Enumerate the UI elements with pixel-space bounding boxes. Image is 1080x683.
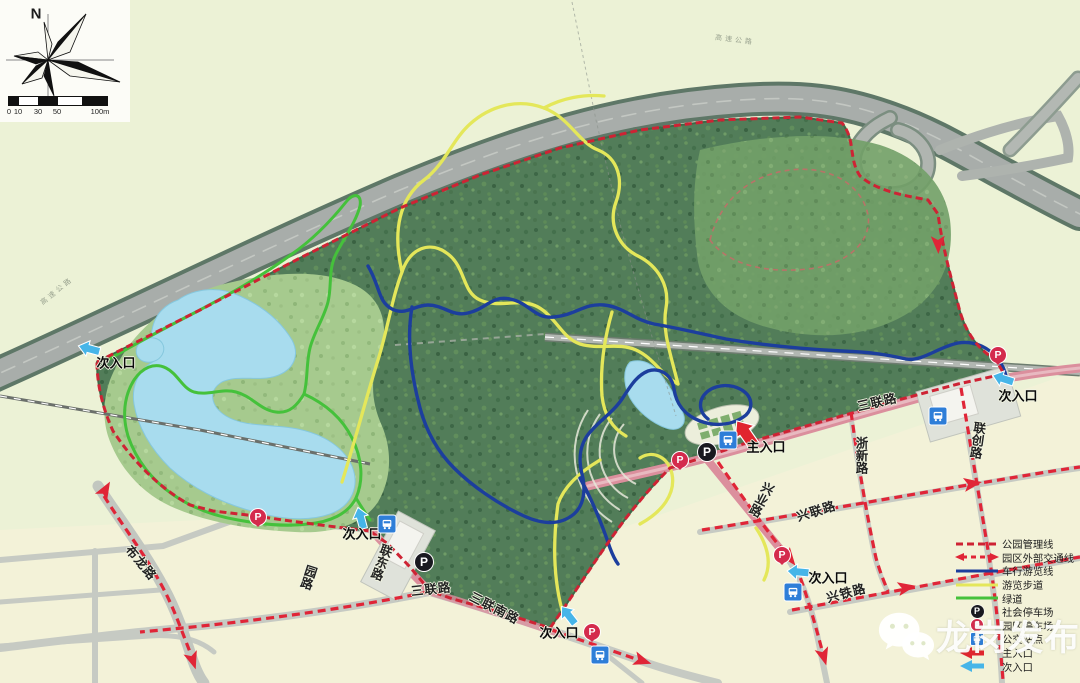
scale-tick: 30 — [34, 107, 42, 116]
scale-tick: 10 — [14, 107, 22, 116]
northeast-meadow — [694, 136, 951, 335]
legend-dashed-arrow-line — [952, 552, 1002, 562]
legend-blue-line — [952, 567, 1002, 575]
legend-row-park-admin-line: 公园管理线 — [952, 537, 1080, 551]
legend-red-arrow-icon — [952, 647, 1002, 659]
legend-green-line — [952, 594, 1002, 602]
legend-row-vehicle-tour: 车行游览线 — [952, 564, 1080, 578]
legend-blue-arrow-icon — [952, 660, 1002, 672]
park-plan-map: 高速公路 高速公路 布龙路 园路 联东路 三联路 三联南路 三联路 兴业路 兴联… — [0, 0, 1080, 683]
legend-row-secondary-entrance: 次入口 — [952, 659, 1080, 673]
scale-bar-blocks — [8, 96, 108, 106]
legend-yellow-line — [952, 581, 1002, 589]
legend-public-parking-icon: P — [971, 605, 984, 618]
legend-park-parking-icon: P — [970, 618, 984, 632]
legend: 公园管理线 园区外部交通线 车行游览线 游览步道 绿道 P 社会停车场 P 园区… — [952, 537, 1080, 673]
scale-tick: 100m — [91, 107, 110, 116]
scale-bar: 0 10 30 50 100m — [8, 96, 108, 120]
scale-tick: 0 — [7, 107, 11, 116]
legend-row-public-parking: P 社会停车场 — [952, 605, 1080, 619]
legend-row-walking-trail: 游览步道 — [952, 578, 1080, 592]
legend-row-bus-stop: 公交站点 — [952, 632, 1080, 646]
legend-bus-stop-icon — [970, 632, 984, 646]
legend-row-main-entrance: 主入口 — [952, 646, 1080, 660]
map-canvas — [0, 0, 1080, 683]
legend-dashed-red-line — [952, 540, 1002, 548]
legend-row-greenway: 绿道 — [952, 591, 1080, 605]
legend-row-park-parking: P 园区停车场 — [952, 619, 1080, 633]
scale-tick: 50 — [53, 107, 61, 116]
legend-row-external-traffic: 园区外部交通线 — [952, 551, 1080, 565]
